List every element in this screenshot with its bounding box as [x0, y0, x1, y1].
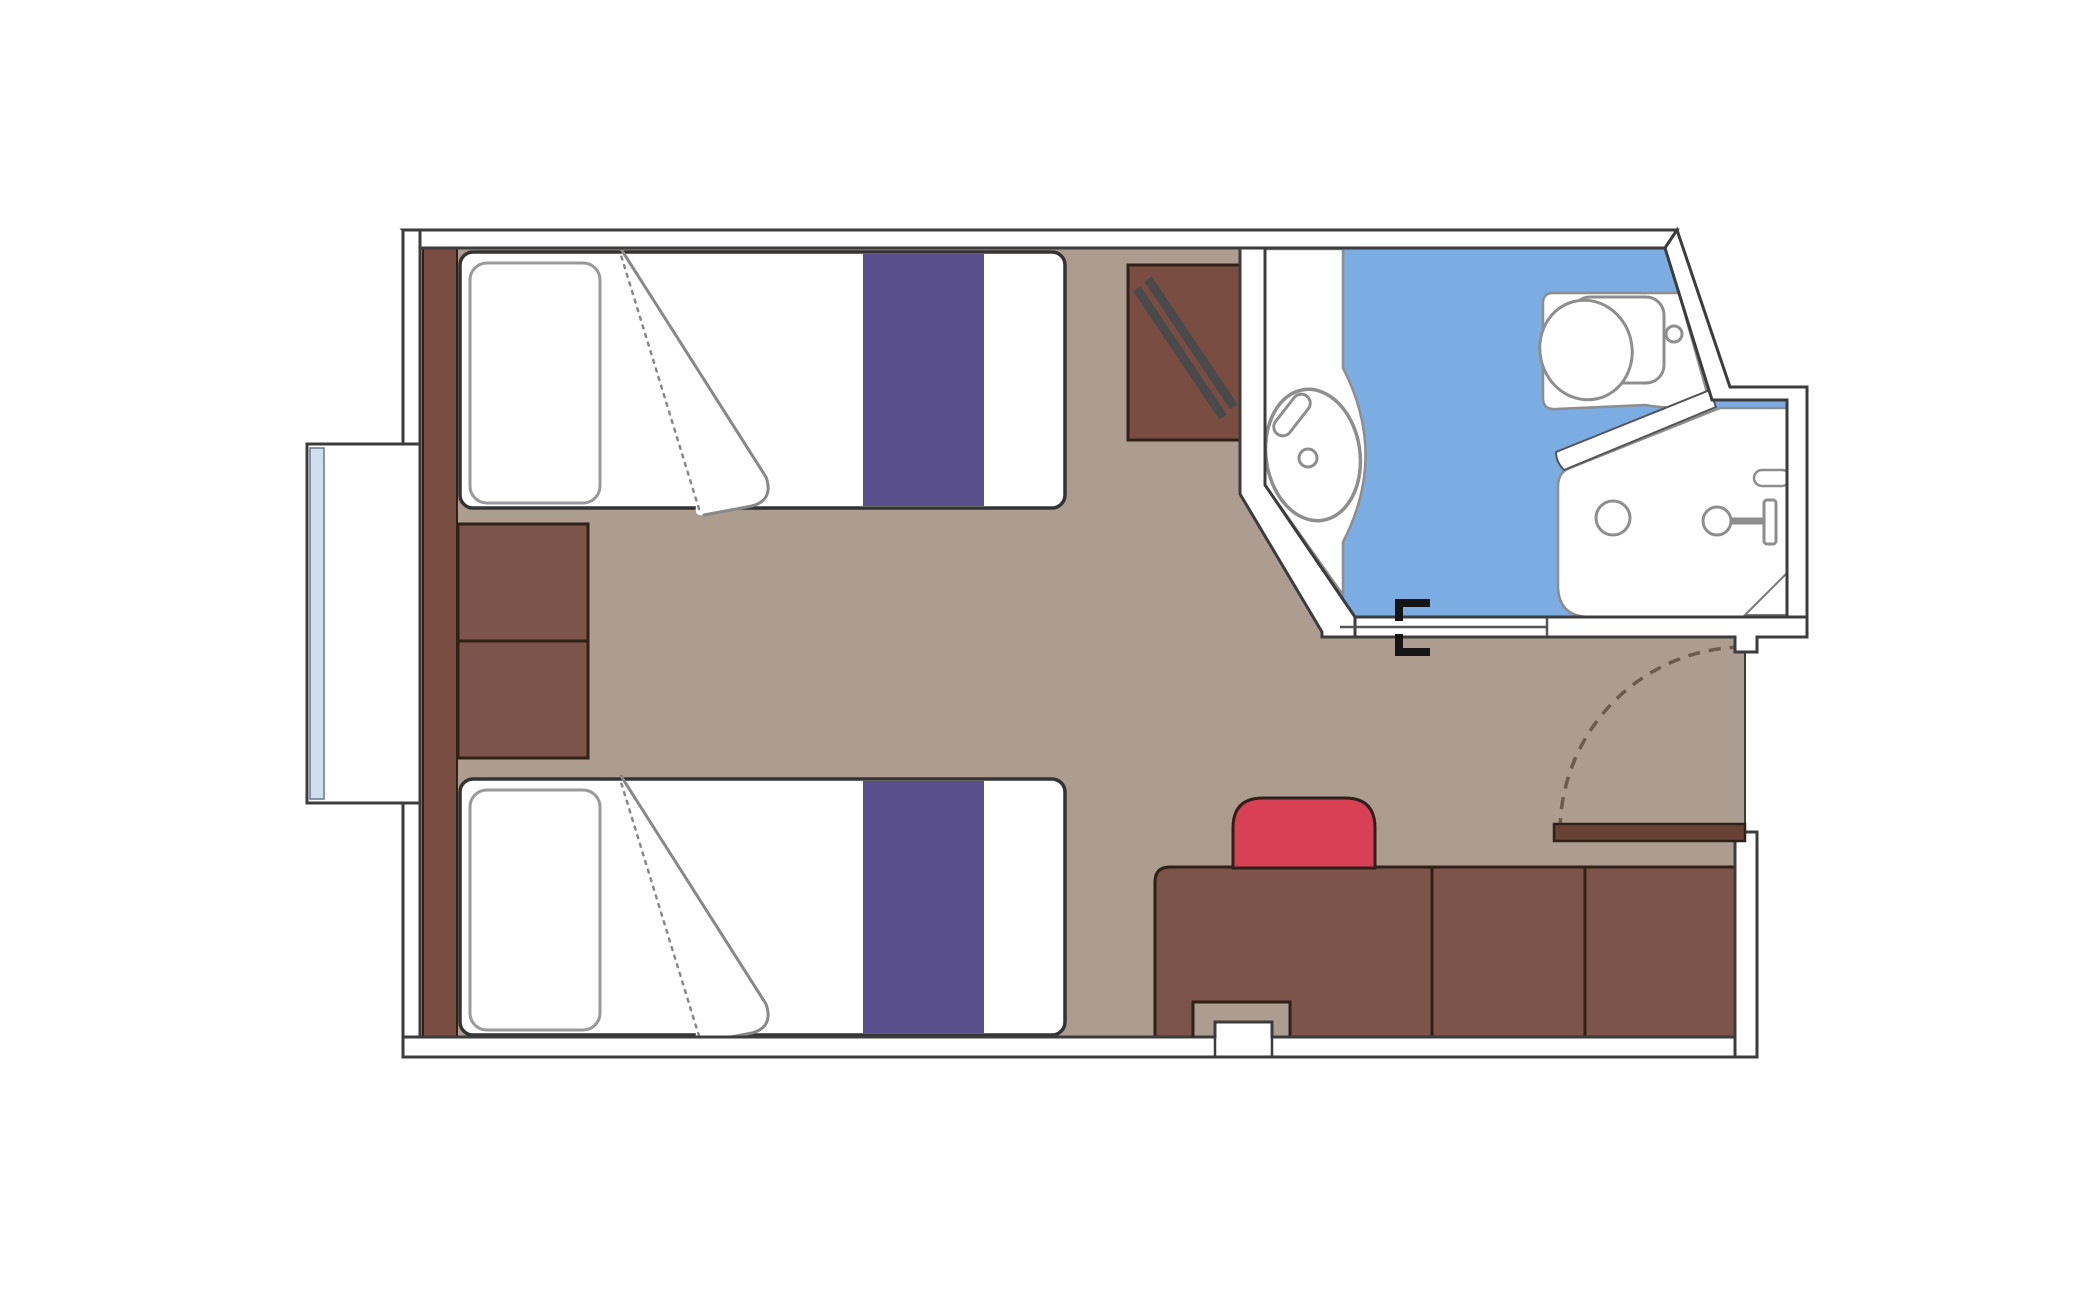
wall-left-lower	[403, 798, 420, 1057]
window-glass	[310, 448, 324, 799]
bed-2	[460, 776, 1065, 1042]
sink-drain-icon	[1299, 449, 1317, 467]
shower-drain-icon	[1596, 501, 1630, 535]
shower-bracket	[1764, 500, 1776, 544]
bed-1-runner	[863, 254, 984, 506]
shower-head-icon	[1703, 507, 1731, 535]
wall-alcove-right	[1735, 832, 1757, 1057]
shower-soap-dish	[1754, 470, 1790, 486]
desk-chair	[1233, 798, 1375, 868]
toilet-flush-icon	[1666, 326, 1682, 342]
headboard-panel	[423, 248, 457, 1037]
bed-2-runner	[863, 781, 984, 1033]
entrance-door-leaf	[1554, 824, 1745, 841]
floor-plan-canvas	[0, 0, 2100, 1299]
wall-top	[403, 230, 1677, 248]
bed-1	[460, 249, 1065, 515]
wall-left-upper	[403, 230, 420, 449]
bed-1-pillow	[470, 263, 600, 503]
floor-plan-page	[0, 0, 2100, 1299]
window	[307, 444, 420, 803]
bed-2-pillow	[470, 790, 600, 1030]
